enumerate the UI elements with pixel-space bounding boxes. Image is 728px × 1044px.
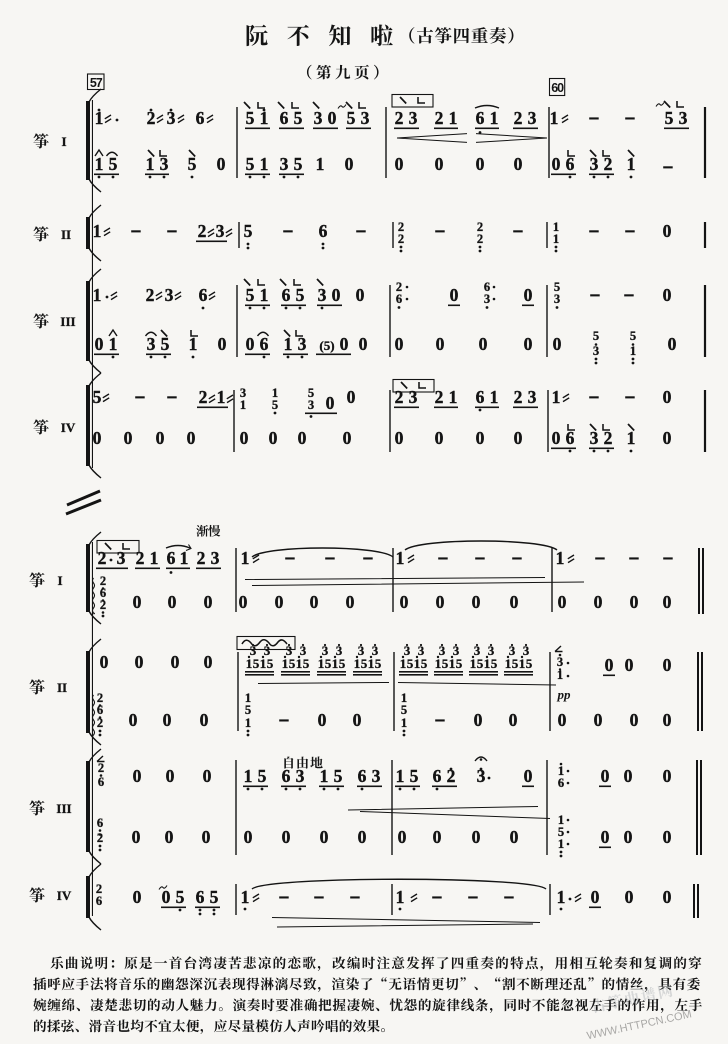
svg-text:1: 1 [244, 766, 253, 786]
svg-text:0: 0 [100, 652, 109, 672]
svg-text:1: 1 [260, 285, 269, 305]
svg-text:0: 0 [398, 827, 407, 847]
svg-text:0: 0 [479, 334, 488, 354]
svg-text:1: 1 [396, 548, 405, 568]
svg-text:3: 3 [318, 285, 327, 305]
svg-text:I: I [57, 573, 62, 588]
svg-text:5: 5 [93, 387, 102, 407]
svg-text:5: 5 [442, 656, 449, 671]
svg-text:0: 0 [591, 887, 600, 907]
svg-text:1: 1 [246, 656, 253, 671]
svg-text:0: 0 [353, 710, 362, 730]
svg-text:0: 0 [218, 334, 227, 354]
svg-text:3: 3 [361, 108, 370, 128]
svg-text:6: 6 [167, 548, 176, 568]
svg-text:1: 1 [396, 766, 405, 786]
svg-text:5: 5 [267, 656, 274, 671]
svg-text:3: 3 [308, 398, 314, 412]
svg-text:2: 2 [197, 548, 206, 568]
svg-text:5: 5 [253, 656, 260, 671]
svg-text:5: 5 [512, 656, 519, 671]
svg-text:3: 3 [280, 154, 289, 174]
svg-text:2: 2 [514, 387, 523, 407]
svg-text:0: 0 [558, 592, 567, 612]
svg-text:0: 0 [476, 428, 485, 448]
svg-text:0: 0 [298, 428, 307, 448]
svg-text:6: 6 [260, 334, 269, 354]
svg-text:5: 5 [294, 154, 303, 174]
svg-text:1: 1 [550, 108, 559, 128]
svg-text:0: 0 [203, 766, 212, 786]
svg-text:0: 0 [663, 887, 672, 907]
svg-text:1: 1 [553, 232, 559, 246]
svg-text:3: 3 [298, 334, 307, 354]
svg-text:6: 6 [433, 766, 442, 786]
svg-text:0: 0 [514, 154, 523, 174]
svg-text:5: 5 [296, 285, 305, 305]
svg-text:3: 3 [679, 108, 688, 128]
svg-text:1: 1 [519, 656, 526, 671]
svg-text:2: 2 [98, 548, 107, 568]
svg-text:3: 3 [147, 334, 156, 354]
svg-text:1: 1 [241, 548, 250, 568]
svg-text:0: 0 [133, 592, 142, 612]
svg-text:III: III [60, 314, 75, 329]
svg-text:5: 5 [176, 887, 185, 907]
svg-text:0: 0 [343, 428, 352, 448]
svg-text:1: 1 [435, 656, 442, 671]
svg-text:1: 1 [449, 656, 456, 671]
svg-text:0: 0 [358, 827, 367, 847]
svg-text:5: 5 [410, 766, 419, 786]
svg-text:2: 2 [199, 387, 208, 407]
svg-text:0: 0 [436, 592, 445, 612]
svg-text:0: 0 [510, 592, 519, 612]
svg-text:0: 0 [472, 592, 481, 612]
svg-text:6: 6 [196, 887, 205, 907]
svg-text:0: 0 [663, 428, 672, 448]
svg-text:0: 0 [326, 393, 335, 413]
svg-text:1: 1 [318, 656, 325, 671]
svg-text:2: 2 [435, 387, 444, 407]
svg-text:6: 6 [566, 428, 575, 448]
svg-text:1: 1 [260, 656, 267, 671]
svg-text:5: 5 [526, 656, 533, 671]
svg-text:5: 5 [246, 285, 255, 305]
svg-text:1: 1 [449, 108, 458, 128]
svg-text:6: 6 [280, 108, 289, 128]
svg-text:5: 5 [347, 108, 356, 128]
svg-text:5: 5 [161, 334, 170, 354]
svg-text:0: 0 [435, 428, 444, 448]
svg-text:2: 2 [395, 387, 404, 407]
svg-text:0: 0 [663, 710, 672, 730]
svg-text:5: 5 [109, 154, 118, 174]
svg-text:5: 5 [246, 108, 255, 128]
svg-text:0: 0 [129, 710, 138, 730]
svg-text:I: I [61, 134, 66, 149]
svg-text:1: 1 [556, 548, 565, 568]
svg-text:0: 0 [168, 592, 177, 612]
svg-text:1: 1 [217, 387, 226, 407]
svg-text:0: 0 [133, 887, 142, 907]
svg-text:2: 2 [604, 154, 613, 174]
svg-text:3: 3 [528, 108, 537, 128]
svg-text:1: 1 [627, 154, 636, 174]
svg-text:5: 5 [401, 703, 407, 717]
svg-text:0: 0 [275, 592, 284, 612]
svg-text:6: 6 [282, 285, 291, 305]
svg-text:6: 6 [98, 775, 104, 789]
svg-text:0: 0 [345, 154, 354, 174]
svg-text:3: 3 [590, 428, 599, 448]
svg-text:0: 0 [552, 154, 561, 174]
svg-text:1: 1 [557, 887, 566, 907]
svg-text:5: 5 [375, 656, 382, 671]
svg-text:0: 0 [332, 285, 341, 305]
svg-text:5: 5 [272, 398, 278, 412]
svg-text:1: 1 [284, 334, 293, 354]
svg-text:5: 5 [289, 656, 296, 671]
svg-text:0: 0 [204, 592, 213, 612]
svg-text:1: 1 [558, 837, 564, 851]
svg-text:5: 5 [303, 656, 310, 671]
svg-text:0: 0 [436, 334, 445, 354]
svg-text:1: 1 [630, 344, 636, 358]
svg-text:1: 1 [490, 387, 499, 407]
svg-text:3: 3 [372, 766, 381, 786]
svg-text:2: 2 [604, 428, 613, 448]
svg-text:57: 57 [90, 76, 103, 90]
svg-text:3: 3 [117, 548, 126, 568]
svg-text:0: 0 [133, 766, 142, 786]
svg-text:0: 0 [93, 428, 102, 448]
svg-text:1: 1 [296, 656, 303, 671]
svg-text:0: 0 [171, 652, 180, 672]
svg-text:6: 6 [476, 387, 485, 407]
svg-text:0: 0 [552, 428, 561, 448]
svg-text:2: 2 [136, 548, 145, 568]
svg-text:1: 1 [150, 548, 159, 568]
svg-text:3: 3 [590, 154, 599, 174]
svg-text:0: 0 [624, 827, 633, 847]
svg-text:1: 1 [282, 656, 289, 671]
svg-text:1: 1 [354, 656, 361, 671]
svg-text:6: 6 [282, 766, 291, 786]
svg-text:6: 6 [97, 816, 103, 830]
svg-text:0: 0 [156, 428, 165, 448]
svg-text:5: 5 [246, 154, 255, 174]
svg-text:0: 0 [395, 154, 404, 174]
svg-text:1: 1 [109, 334, 118, 354]
svg-text:3: 3 [593, 344, 599, 358]
svg-text:5: 5 [294, 108, 303, 128]
svg-text:0: 0 [553, 334, 562, 354]
svg-text:II: II [61, 227, 71, 242]
svg-text:0: 0 [340, 334, 349, 354]
svg-text:3: 3 [484, 292, 490, 306]
svg-text:5: 5 [630, 329, 636, 343]
svg-text:0: 0 [450, 285, 459, 305]
svg-text:0: 0 [356, 285, 365, 305]
svg-text:5: 5 [491, 656, 498, 671]
svg-text:6: 6 [196, 108, 205, 128]
svg-text:0: 0 [347, 387, 356, 407]
svg-text:0: 0 [524, 285, 533, 305]
svg-text:0: 0 [244, 827, 253, 847]
svg-text:0: 0 [663, 285, 672, 305]
svg-text:0: 0 [320, 827, 329, 847]
svg-text:0: 0 [165, 827, 174, 847]
svg-text:1: 1 [505, 656, 512, 671]
svg-text:0: 0 [204, 652, 213, 672]
svg-text:0: 0 [95, 334, 104, 354]
svg-text:5: 5 [665, 108, 674, 128]
svg-text:5: 5 [258, 766, 267, 786]
svg-text:0: 0 [524, 334, 533, 354]
svg-text:0: 0 [395, 428, 404, 448]
svg-text:5: 5 [456, 656, 463, 671]
svg-text:1: 1 [449, 387, 458, 407]
svg-text:1: 1 [93, 221, 102, 241]
svg-text:1: 1 [316, 154, 325, 174]
svg-text:0: 0 [240, 428, 249, 448]
svg-text:0: 0 [509, 710, 518, 730]
svg-text:1: 1 [189, 334, 198, 354]
svg-text:2: 2 [98, 761, 104, 775]
svg-text:60: 60 [551, 81, 564, 95]
svg-text:5: 5 [188, 154, 197, 174]
svg-text:6: 6 [396, 292, 402, 306]
svg-text:0: 0 [663, 592, 672, 612]
svg-text:3: 3 [557, 655, 563, 669]
svg-text:0: 0 [310, 592, 319, 612]
svg-text:2: 2 [514, 108, 523, 128]
svg-text:0: 0 [510, 827, 519, 847]
svg-text:0: 0 [474, 710, 483, 730]
svg-text:0: 0 [135, 652, 144, 672]
svg-text:1: 1 [552, 387, 561, 407]
svg-text:0: 0 [625, 887, 634, 907]
svg-text:6: 6 [476, 108, 485, 128]
svg-text:0: 0 [630, 592, 639, 612]
svg-text:2: 2 [146, 285, 155, 305]
svg-text:3: 3 [314, 108, 323, 128]
svg-text:6: 6 [96, 894, 102, 908]
svg-text:0: 0 [435, 154, 444, 174]
svg-text:3: 3 [211, 548, 220, 568]
svg-text:0: 0 [395, 334, 404, 354]
svg-text:0: 0 [625, 655, 634, 675]
svg-text:6: 6 [566, 154, 575, 174]
svg-text:5: 5 [339, 656, 346, 671]
svg-text:(5): (5) [319, 338, 334, 353]
svg-text:5: 5 [244, 221, 253, 241]
svg-text:6: 6 [558, 776, 564, 790]
svg-text:IV: IV [61, 420, 76, 435]
svg-text:0: 0 [163, 710, 172, 730]
svg-text:0: 0 [663, 387, 672, 407]
svg-text:6: 6 [358, 766, 367, 786]
svg-text:IV: IV [57, 888, 72, 903]
svg-text:1: 1 [400, 656, 407, 671]
svg-text:2: 2 [435, 108, 444, 128]
svg-text:2: 2 [398, 232, 404, 246]
svg-text:0: 0 [663, 221, 672, 241]
svg-text:5: 5 [407, 656, 414, 671]
svg-text:3: 3 [554, 292, 560, 306]
svg-text:3: 3 [160, 154, 169, 174]
svg-text:3: 3 [409, 387, 418, 407]
svg-text:1: 1 [180, 548, 189, 568]
svg-text:1: 1 [320, 766, 329, 786]
svg-text:pp: pp [557, 687, 572, 702]
svg-text:1: 1 [396, 887, 405, 907]
svg-text:0: 0 [318, 710, 327, 730]
svg-text:1: 1 [627, 428, 636, 448]
svg-text:5: 5 [361, 656, 368, 671]
svg-text:0: 0 [359, 334, 368, 354]
svg-text:II: II [57, 680, 67, 695]
svg-text:0: 0 [132, 827, 141, 847]
svg-text:3: 3 [165, 285, 174, 305]
svg-text:0: 0 [472, 827, 481, 847]
svg-text:III: III [56, 801, 71, 816]
svg-text:0: 0 [601, 766, 610, 786]
svg-text:3: 3 [296, 766, 305, 786]
svg-text:0: 0 [663, 827, 672, 847]
svg-text:2: 2 [477, 232, 483, 246]
svg-text:1: 1 [260, 154, 269, 174]
svg-text:0: 0 [239, 592, 248, 612]
svg-text:0: 0 [663, 766, 672, 786]
svg-text:5: 5 [477, 656, 484, 671]
svg-text:5: 5 [325, 656, 332, 671]
svg-text:5: 5 [593, 329, 599, 343]
svg-text:0: 0 [433, 827, 442, 847]
svg-text:0: 0 [202, 827, 211, 847]
svg-text:2: 2 [97, 831, 103, 845]
svg-text:1: 1 [490, 108, 499, 128]
svg-text:1: 1 [93, 285, 102, 305]
svg-text:0: 0 [630, 710, 639, 730]
svg-text:0: 0 [217, 154, 226, 174]
svg-text:0: 0 [524, 766, 533, 786]
svg-text:0: 0 [663, 655, 672, 675]
svg-text:0: 0 [558, 710, 567, 730]
svg-text:0: 0 [162, 887, 171, 907]
svg-text:0: 0 [400, 592, 409, 612]
svg-text:1: 1 [240, 398, 246, 412]
svg-text:3: 3 [216, 221, 225, 241]
svg-text:0: 0 [282, 827, 291, 847]
svg-text:1: 1 [332, 656, 339, 671]
svg-text:0: 0 [166, 766, 175, 786]
svg-text:1: 1 [95, 154, 104, 174]
svg-text:1: 1 [245, 716, 251, 730]
svg-text:2: 2 [198, 221, 207, 241]
svg-text:1: 1 [484, 656, 491, 671]
svg-text:2: 2 [395, 108, 404, 128]
svg-text:1: 1 [401, 716, 407, 730]
svg-text:0: 0 [668, 334, 677, 354]
svg-text:0: 0 [594, 592, 603, 612]
svg-text:0: 0 [187, 428, 196, 448]
svg-text:6: 6 [199, 285, 208, 305]
svg-text:5: 5 [210, 887, 219, 907]
svg-text:0: 0 [601, 827, 610, 847]
svg-text:0: 0 [514, 428, 523, 448]
svg-text:1: 1 [146, 154, 155, 174]
svg-text:0: 0 [269, 428, 278, 448]
svg-text:0: 0 [246, 334, 255, 354]
svg-text:1: 1 [414, 656, 421, 671]
svg-text:0: 0 [124, 428, 133, 448]
svg-text:0: 0 [200, 710, 209, 730]
svg-text:0: 0 [624, 766, 633, 786]
svg-text:0: 0 [346, 592, 355, 612]
svg-text:1: 1 [241, 887, 250, 907]
svg-text:1: 1 [470, 656, 477, 671]
svg-text:0: 0 [594, 710, 603, 730]
svg-text:3: 3 [409, 108, 418, 128]
svg-text:5: 5 [421, 656, 428, 671]
svg-text:5: 5 [334, 766, 343, 786]
svg-text:5: 5 [245, 703, 251, 717]
svg-text:0: 0 [476, 154, 485, 174]
svg-text:0: 0 [605, 655, 614, 675]
svg-text:6: 6 [319, 221, 328, 241]
svg-text:1: 1 [368, 656, 375, 671]
svg-text:0: 0 [328, 108, 337, 128]
svg-text:3: 3 [528, 387, 537, 407]
